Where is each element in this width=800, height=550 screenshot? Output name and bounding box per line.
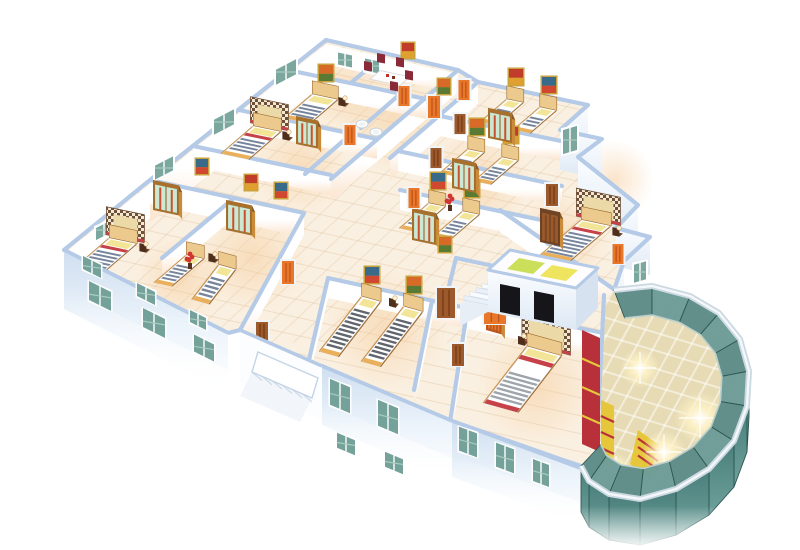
wall-painting (364, 266, 381, 285)
bathroom-fixture (370, 128, 382, 136)
wall-painting (406, 276, 423, 295)
floorplan-3d-render (0, 0, 800, 550)
orange-door (457, 78, 472, 101)
wall-painting (437, 78, 452, 96)
orange-door (611, 242, 626, 265)
elevator-door (500, 284, 520, 316)
brown-door (450, 342, 466, 367)
wall-painting (438, 236, 453, 254)
bathroom-fixture (356, 120, 368, 128)
brown-door (429, 146, 444, 169)
image-stage (0, 0, 800, 550)
dining-chair (390, 81, 398, 92)
orange-door (280, 259, 296, 285)
wall-painting (195, 158, 210, 176)
wall-painting (508, 68, 525, 87)
orange-door (397, 84, 412, 107)
brown-door (544, 182, 560, 207)
wall-painting (318, 64, 335, 83)
wall-painting (541, 76, 558, 95)
wall-painting (274, 182, 289, 200)
brown-door (435, 286, 457, 319)
elevator-door (534, 291, 554, 323)
wall-painting (244, 174, 259, 192)
brown-door (453, 112, 468, 135)
wall-painting (401, 42, 416, 60)
dining-chair (405, 70, 413, 81)
wall-painting (430, 172, 447, 191)
orange-door (426, 94, 442, 119)
dining-chair (396, 57, 404, 68)
orange-door (407, 186, 422, 209)
wall-painting (469, 118, 486, 137)
dining-chair (377, 53, 385, 64)
orange-door (343, 123, 358, 146)
dining-chair (364, 61, 372, 72)
